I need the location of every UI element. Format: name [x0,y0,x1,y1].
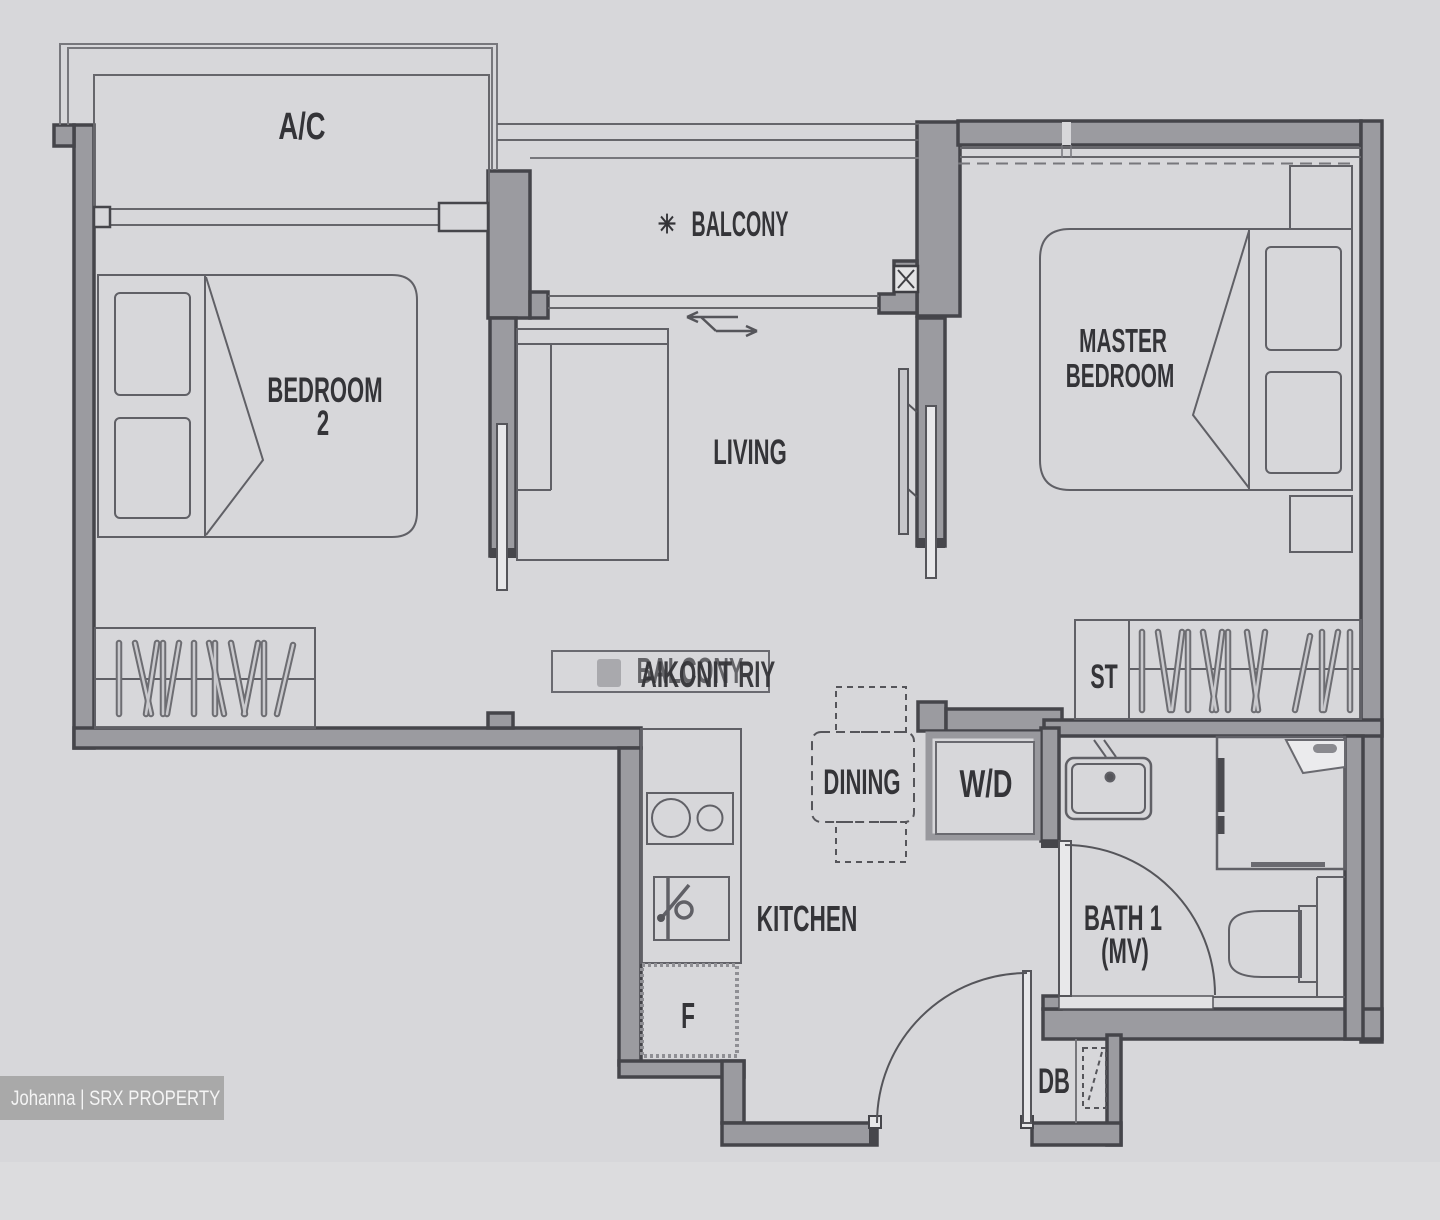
svg-text:LIVING: LIVING [713,434,787,472]
svg-text:BEDROOM: BEDROOM [1066,357,1175,394]
svg-text:ST: ST [1090,658,1118,696]
svg-text:2: 2 [317,405,329,443]
svg-text:BALCONY: BALCONY [637,651,744,691]
svg-text:DB: DB [1038,1063,1070,1101]
svg-text:(MV): (MV) [1101,933,1149,971]
svg-text:A/C: A/C [278,106,325,148]
svg-text:KITCHEN: KITCHEN [757,900,858,939]
svg-text:✳: ✳ [658,210,677,239]
svg-text:BALCONY: BALCONY [692,205,789,244]
svg-text:Johanna | SRX PROPERTY: Johanna | SRX PROPERTY [11,1087,221,1110]
svg-text:DINING: DINING [823,764,900,802]
svg-text:F: F [681,997,695,1036]
svg-text:MASTER: MASTER [1079,322,1167,359]
svg-text:W/D: W/D [959,763,1012,806]
